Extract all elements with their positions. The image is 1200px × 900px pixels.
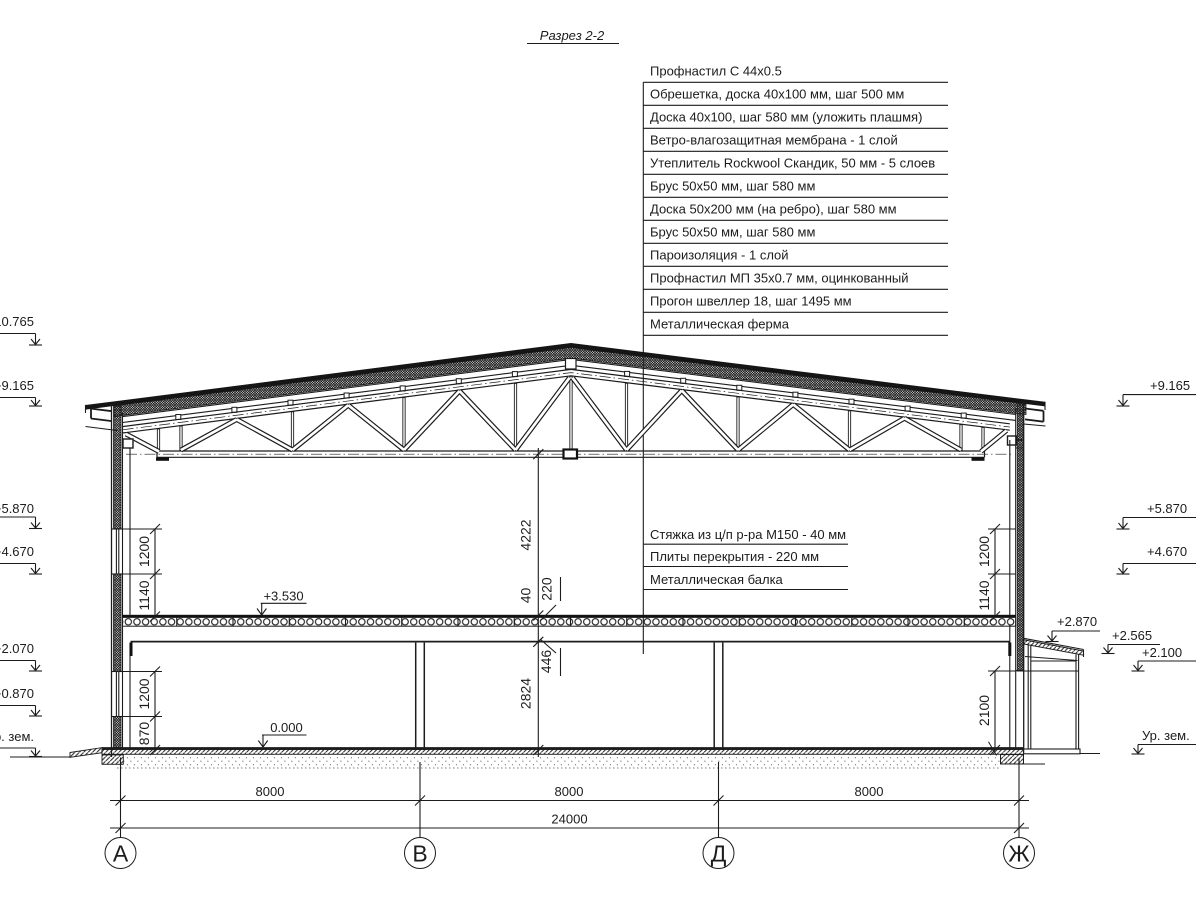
- svg-text:Металлическая ферма: Металлическая ферма: [650, 317, 790, 332]
- svg-text:+2.870: +2.870: [1057, 614, 1097, 629]
- svg-text:Д: Д: [711, 841, 727, 867]
- svg-text:8000: 8000: [256, 784, 285, 799]
- svg-text:+9.165: +9.165: [1150, 378, 1190, 393]
- svg-text:0.000: 0.000: [270, 720, 303, 735]
- svg-text:Доска 50х200 мм (на ребро), ша: Доска 50х200 мм (на ребро), шаг 580 мм: [650, 202, 897, 217]
- svg-text:+2.565: +2.565: [1112, 628, 1152, 643]
- svg-text:+5.870: +5.870: [1147, 501, 1187, 516]
- svg-text:Брус 50х50 мм, шаг 580 мм: Брус 50х50 мм, шаг 580 мм: [650, 179, 815, 194]
- svg-text:1140: 1140: [976, 580, 992, 610]
- svg-text:+5.870: +5.870: [0, 501, 34, 516]
- svg-text:+0.870: +0.870: [0, 686, 34, 701]
- svg-text:А: А: [113, 841, 129, 867]
- svg-text:Металлическая балка: Металлическая балка: [650, 572, 784, 587]
- svg-text:Утеплитель Rockwool Скандик, 5: Утеплитель Rockwool Скандик, 50 мм - 5 с…: [650, 156, 935, 171]
- svg-text:1200: 1200: [136, 536, 152, 567]
- svg-text:1140: 1140: [136, 580, 152, 610]
- svg-text:1200: 1200: [136, 678, 152, 709]
- svg-text:Обрешетка, доска 40х100 мм, ша: Обрешетка, доска 40х100 мм, шаг 500 мм: [650, 87, 904, 102]
- svg-text:4222: 4222: [518, 519, 534, 550]
- svg-text:220: 220: [539, 577, 555, 601]
- svg-text:Прогон швеллер 18, шаг 1495 мм: Прогон швеллер 18, шаг 1495 мм: [650, 294, 852, 309]
- svg-text:Ур. зем.: Ур. зем.: [1142, 728, 1190, 743]
- svg-text:+4.670: +4.670: [1147, 544, 1187, 559]
- svg-text:2100: 2100: [976, 695, 992, 726]
- svg-text:+2.100: +2.100: [1142, 645, 1182, 660]
- svg-text:+4.670: +4.670: [0, 544, 34, 559]
- svg-text:Стяжка из ц/п р-ра М150 - 40 м: Стяжка из ц/п р-ра М150 - 40 мм: [650, 527, 846, 542]
- svg-text:Разрез 2-2: Разрез 2-2: [540, 28, 605, 43]
- svg-text:2824: 2824: [518, 678, 534, 709]
- svg-text:870: 870: [136, 722, 152, 746]
- svg-text:Брус 50х50 мм, шаг 580 мм: Брус 50х50 мм, шаг 580 мм: [650, 225, 815, 240]
- svg-text:Плиты перекрытия - 220 мм: Плиты перекрытия - 220 мм: [650, 549, 819, 564]
- svg-text:8000: 8000: [555, 784, 584, 799]
- svg-text:Пароизоляция - 1 слой: Пароизоляция - 1 слой: [650, 248, 789, 263]
- svg-text:В: В: [412, 841, 427, 867]
- svg-text:40: 40: [518, 588, 534, 604]
- svg-text:+2.070: +2.070: [0, 641, 34, 656]
- svg-text:+3.530: +3.530: [263, 589, 303, 604]
- svg-text:Профнастил МП 35х0.7 мм, оцинк: Профнастил МП 35х0.7 мм, оцинкованный: [650, 271, 908, 286]
- svg-text:446: 446: [538, 650, 554, 674]
- svg-text:Доска 40х100, шаг 580 мм (улож: Доска 40х100, шаг 580 мм (уложить плашмя…: [650, 110, 922, 125]
- svg-text:Ур. зем.: Ур. зем.: [0, 729, 34, 744]
- svg-text:+9.165: +9.165: [0, 378, 34, 393]
- svg-text:Ветро-влагозащитная мембрана -: Ветро-влагозащитная мембрана - 1 слой: [650, 133, 898, 148]
- svg-text:Профнастил С 44х0.5: Профнастил С 44х0.5: [650, 64, 782, 79]
- svg-text:+10.765: +10.765: [0, 314, 34, 329]
- svg-text:1200: 1200: [976, 536, 992, 567]
- svg-text:8000: 8000: [855, 784, 884, 799]
- svg-text:24000: 24000: [551, 812, 587, 827]
- svg-text:Ж: Ж: [1008, 841, 1029, 867]
